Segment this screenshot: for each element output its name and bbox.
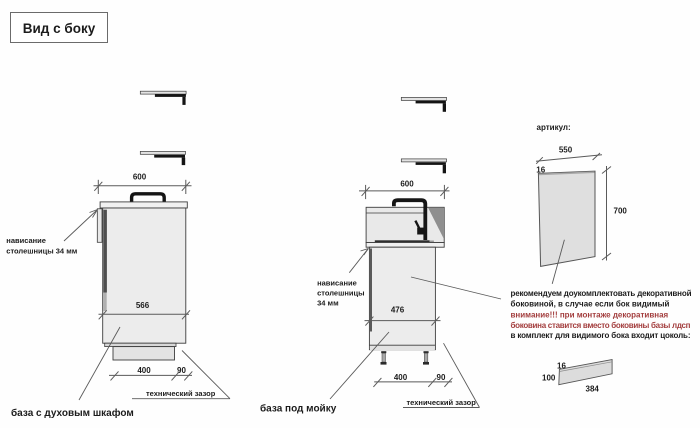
svg-text:400: 400 [137,366,151,375]
svg-text:внимание!!! при монтаже декора: внимание!!! при монтаже декоративная [511,311,669,320]
svg-text:34 мм: 34 мм [317,298,339,307]
svg-text:боковиной, в случае если бок в: боковиной, в случае если бок видимый [511,299,670,308]
svg-text:нависание: нависание [6,236,46,245]
svg-text:база с духовым шкафом: база с духовым шкафом [11,407,134,419]
svg-text:100: 100 [542,374,556,383]
svg-text:90: 90 [437,373,446,382]
svg-text:столешницы: столешницы [317,289,364,298]
svg-text:550: 550 [559,146,573,155]
svg-text:700: 700 [614,207,628,216]
svg-text:400: 400 [394,373,408,382]
svg-text:566: 566 [136,301,150,310]
svg-text:база под мойку: база под мойку [260,403,337,415]
svg-text:нависание: нависание [317,279,357,288]
svg-text:технический зазор: технический зазор [146,389,216,398]
svg-text:16: 16 [557,361,566,370]
svg-text:Вид с боку: Вид с боку [23,21,96,36]
svg-text:476: 476 [391,306,405,315]
svg-text:столешницы 34 мм: столешницы 34 мм [6,246,77,255]
svg-text:600: 600 [133,172,147,181]
svg-text:боковина ставится вместо боков: боковина ставится вместо боковины базы л… [511,321,691,330]
svg-text:600: 600 [400,180,414,189]
svg-text:в комплект для видимого бока в: в комплект для видимого бока входит цоко… [511,331,691,340]
svg-text:артикул:: артикул: [537,123,571,132]
svg-text:технический зазор: технический зазор [407,398,477,407]
svg-text:рекомендуем доукомплектовать д: рекомендуем доукомплектовать декоративно… [511,289,692,298]
svg-text:90: 90 [177,366,186,375]
svg-text:384: 384 [586,384,600,393]
